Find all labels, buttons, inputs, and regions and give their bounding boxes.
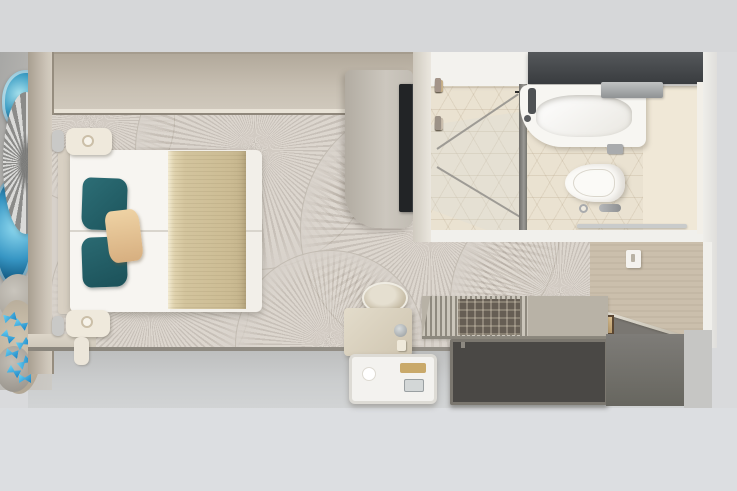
towel-bar <box>577 224 687 228</box>
toilet <box>565 164 625 202</box>
closet-compartment <box>453 342 461 348</box>
lamp-detail <box>82 135 94 147</box>
outside-background-top <box>0 0 737 52</box>
bathroom <box>431 52 707 242</box>
tray-cup <box>362 367 376 381</box>
flush-valve <box>599 204 621 212</box>
vanity-desk <box>344 308 412 356</box>
faucet-handle <box>524 115 531 122</box>
entry-floor <box>684 330 712 408</box>
entry-door-frame <box>703 242 712 342</box>
bathroom-bottom-wall <box>431 230 707 242</box>
bottle <box>397 340 406 351</box>
counter-accessories <box>601 82 663 98</box>
lamp-arm-extension <box>74 337 89 365</box>
plaid-blanket <box>458 299 520 335</box>
toiletry-item <box>435 116 441 130</box>
toiletry-item <box>435 78 441 92</box>
reading-lamp-bottom <box>52 306 116 366</box>
tray-gold-box <box>400 363 426 373</box>
lamp-arm <box>52 130 64 152</box>
closet-side-panel <box>606 334 686 406</box>
tray-glass <box>404 379 424 392</box>
switch-toggle <box>631 254 635 262</box>
cabin-floorplan-render <box>0 0 737 491</box>
bathroom-divider-wall <box>413 52 431 242</box>
toilet-seat <box>573 169 615 197</box>
reading-lamp-top <box>52 126 116 158</box>
lamp-detail <box>81 316 93 328</box>
closet-open-compartments <box>450 339 608 405</box>
kettle <box>394 324 407 337</box>
toilet-paper-holder <box>607 144 623 154</box>
wardrobe <box>422 296 608 408</box>
left-wall <box>28 52 54 374</box>
bathroom-mirror-cabinet <box>528 52 707 84</box>
lamp-arm <box>52 316 64 336</box>
sink-bowl <box>536 95 632 137</box>
tan-throw-pillow <box>104 208 144 264</box>
sink-faucet <box>528 88 536 114</box>
service-tray <box>349 354 437 404</box>
bed-runner-blanket <box>168 151 246 309</box>
outside-background-bottom <box>0 408 737 491</box>
floor-drain <box>579 204 588 213</box>
light-switch <box>626 250 641 268</box>
